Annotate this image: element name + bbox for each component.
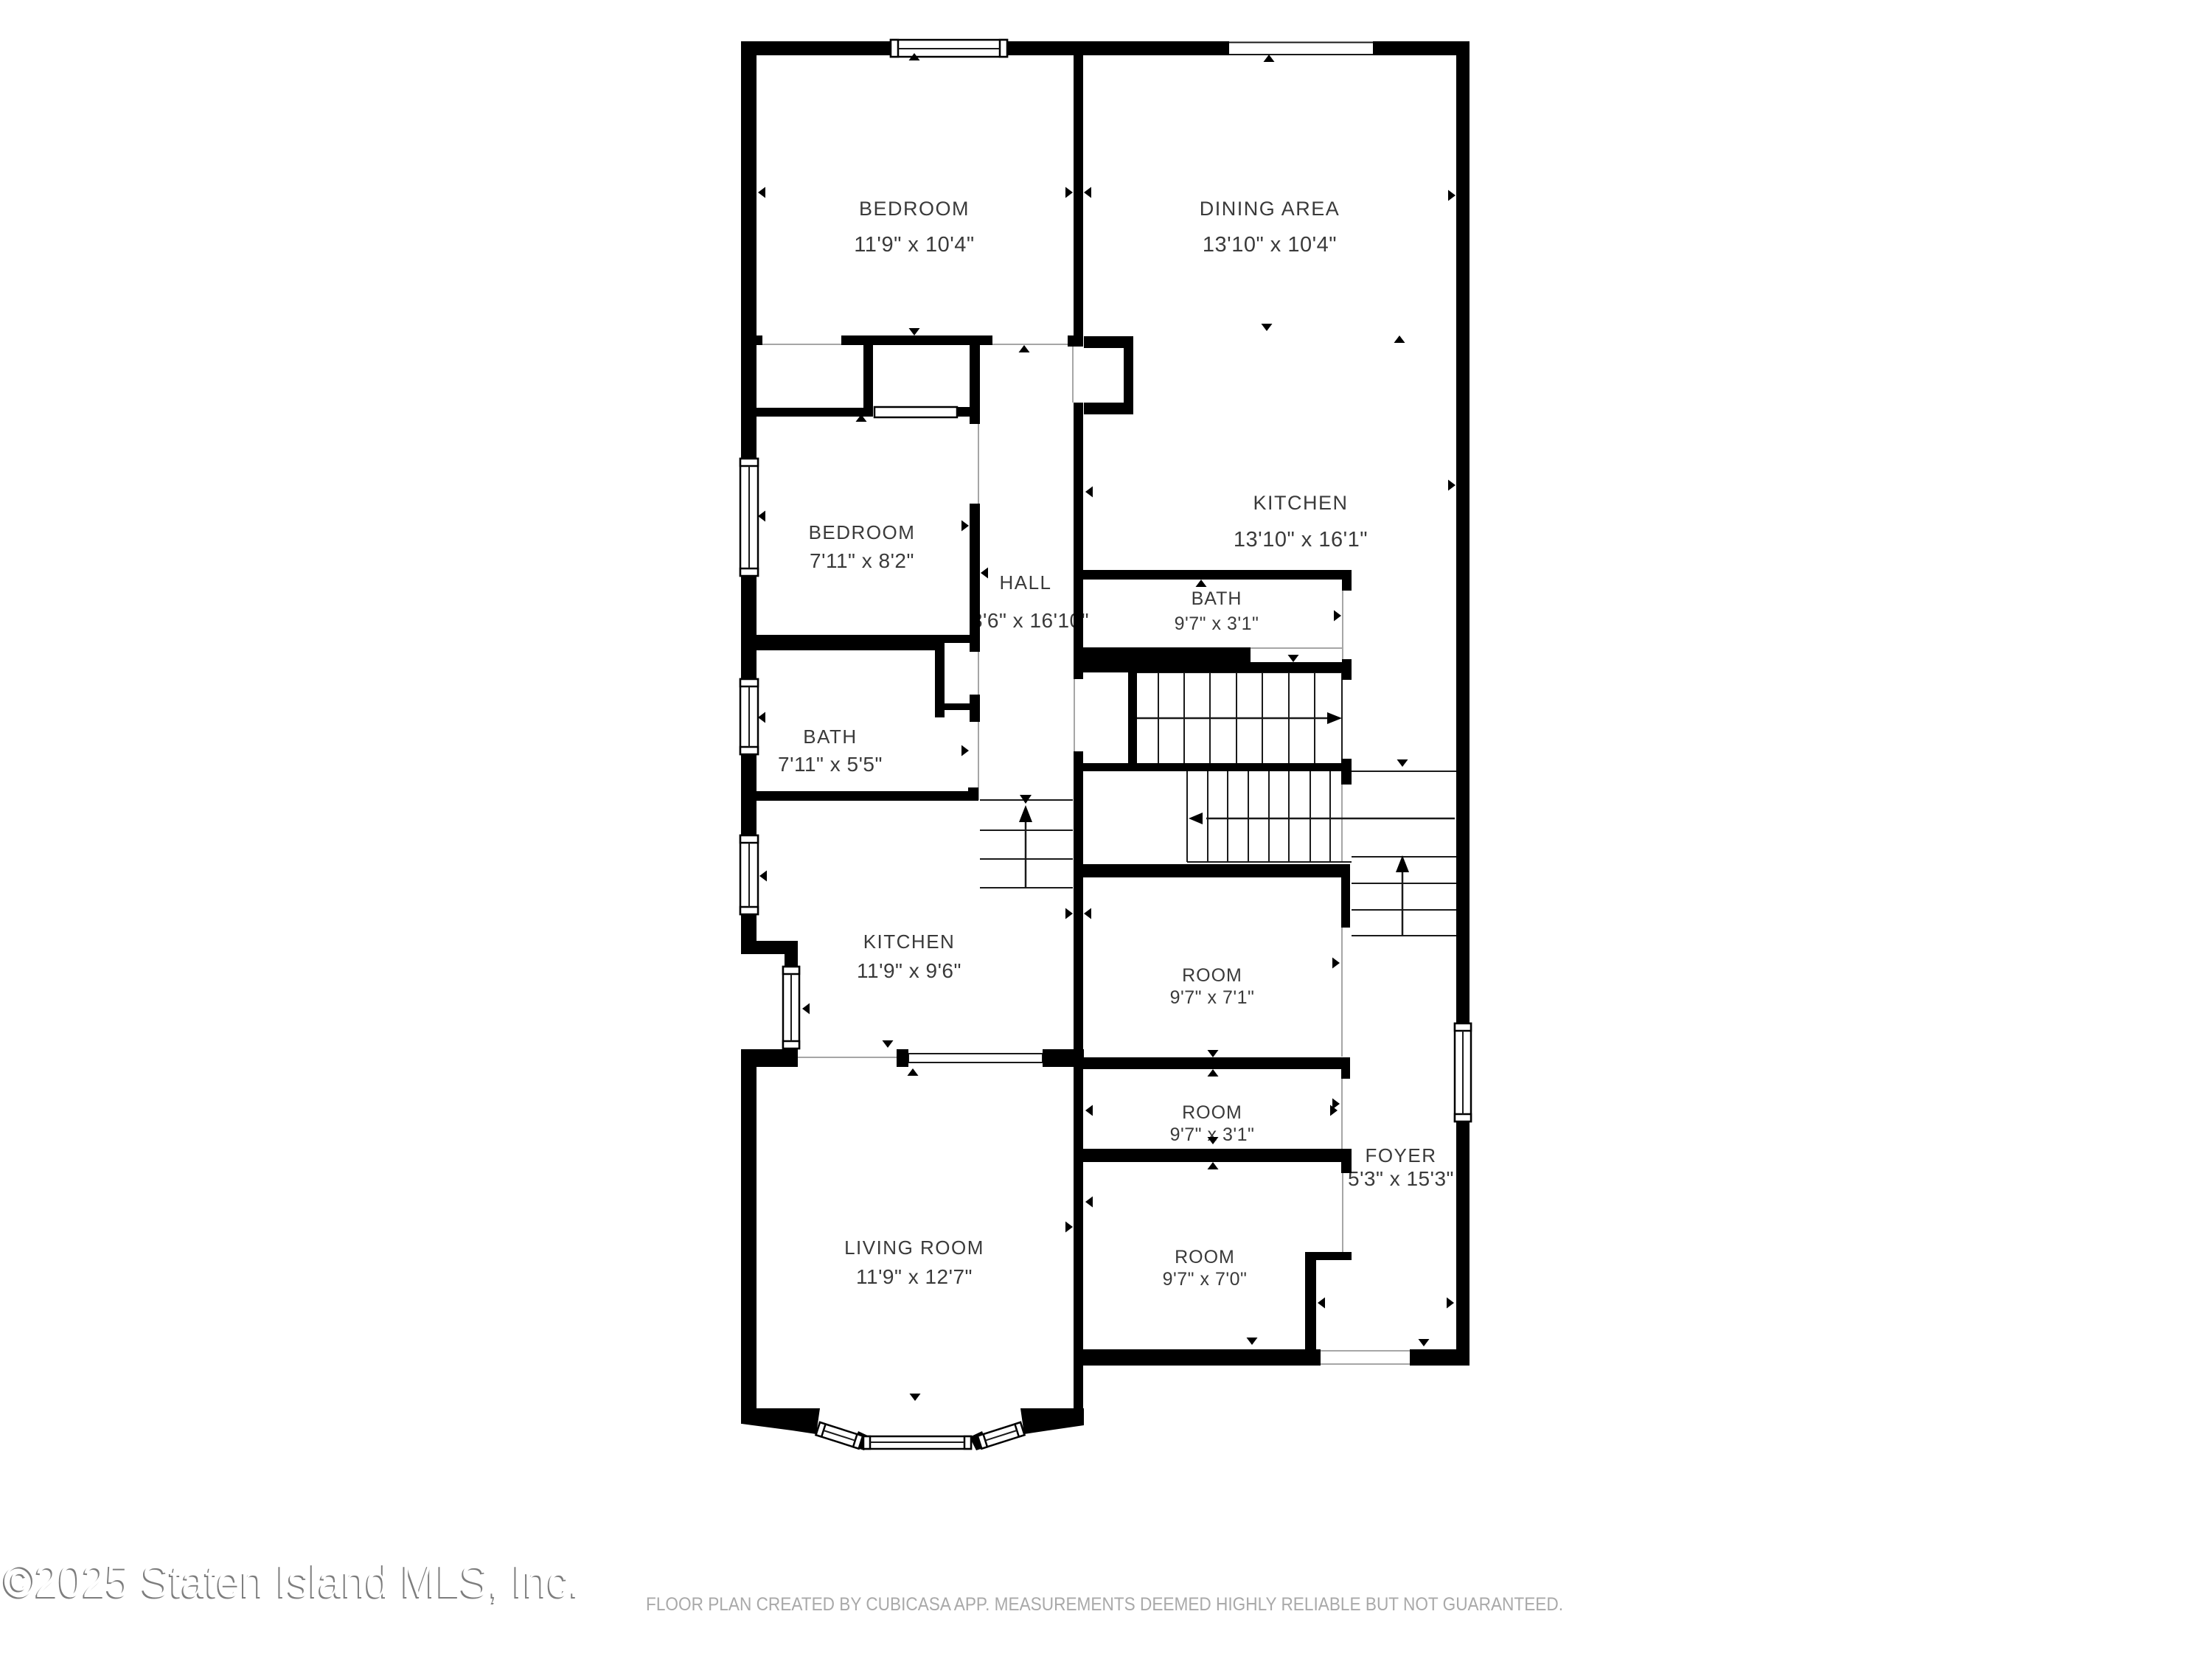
svg-text:©2025 Staten Island MLS, Inc.: ©2025 Staten Island MLS, Inc. <box>4 1557 580 1607</box>
svg-text:13'10" x 16'1": 13'10" x 16'1" <box>1234 528 1368 552</box>
svg-text:11'9" x 9'6": 11'9" x 9'6" <box>857 959 961 982</box>
svg-text:9'7" x 3'1": 9'7" x 3'1" <box>1175 613 1259 634</box>
svg-text:BEDROOM: BEDROOM <box>809 521 916 543</box>
svg-text:9'7" x 7'0": 9'7" x 7'0" <box>1163 1269 1248 1290</box>
svg-text:7'11" x 5'5": 7'11" x 5'5" <box>778 753 883 776</box>
svg-text:13'10" x 10'4": 13'10" x 10'4" <box>1203 233 1337 257</box>
svg-text:LIVING ROOM: LIVING ROOM <box>844 1237 984 1259</box>
svg-text:FLOOR PLAN CREATED BY CUBICASA: FLOOR PLAN CREATED BY CUBICASA APP. MEAS… <box>646 1594 1563 1615</box>
svg-text:KITCHEN: KITCHEN <box>863 931 956 953</box>
svg-text:ROOM: ROOM <box>1182 1102 1242 1123</box>
svg-text:11'9" x 12'7": 11'9" x 12'7" <box>856 1265 973 1288</box>
svg-text:DINING AREA: DINING AREA <box>1200 198 1340 220</box>
svg-text:ROOM: ROOM <box>1175 1247 1235 1267</box>
svg-text:11'9" x 10'4": 11'9" x 10'4" <box>854 233 974 257</box>
svg-text:7'11" x 8'2": 7'11" x 8'2" <box>810 549 914 572</box>
svg-text:9'7" x 7'1": 9'7" x 7'1" <box>1170 987 1255 1008</box>
svg-text:ROOM: ROOM <box>1182 965 1242 986</box>
svg-text:HALL: HALL <box>999 571 1051 594</box>
svg-text:FOYER: FOYER <box>1365 1144 1436 1166</box>
svg-text:BATH: BATH <box>803 726 857 748</box>
svg-text:BEDROOM: BEDROOM <box>859 198 970 220</box>
svg-text:KITCHEN: KITCHEN <box>1253 492 1348 514</box>
svg-text:3'6" x 16'10": 3'6" x 16'10" <box>971 609 1089 632</box>
svg-text:5'3" x 15'3": 5'3" x 15'3" <box>1348 1167 1454 1190</box>
svg-text:BATH: BATH <box>1192 588 1242 609</box>
